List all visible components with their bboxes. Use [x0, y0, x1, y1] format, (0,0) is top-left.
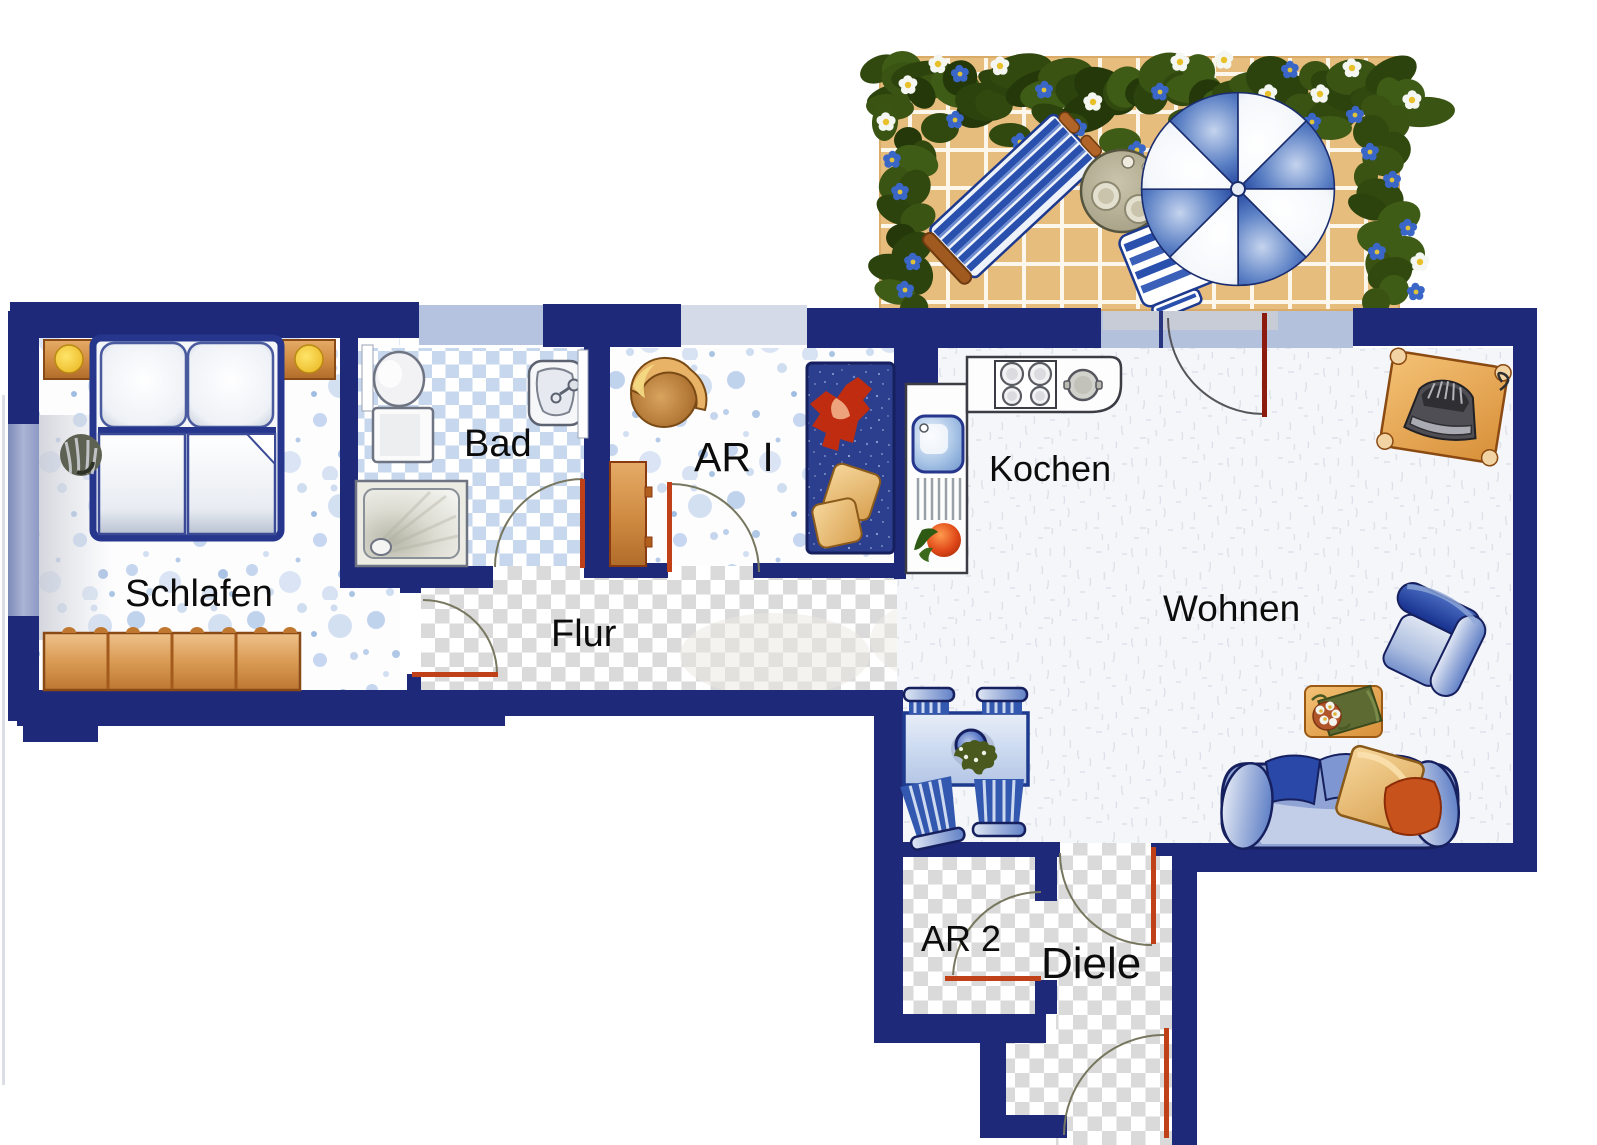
- svg-text:AR I: AR I: [694, 434, 774, 480]
- svg-text:Flur: Flur: [551, 613, 617, 655]
- svg-text:AR 2: AR 2: [921, 918, 1001, 959]
- svg-text:Bad: Bad: [464, 423, 532, 465]
- svg-text:Schlafen: Schlafen: [125, 573, 273, 615]
- svg-text:Wohnen: Wohnen: [1163, 588, 1300, 629]
- svg-text:Diele: Diele: [1041, 939, 1141, 988]
- svg-text:Kochen: Kochen: [989, 448, 1111, 489]
